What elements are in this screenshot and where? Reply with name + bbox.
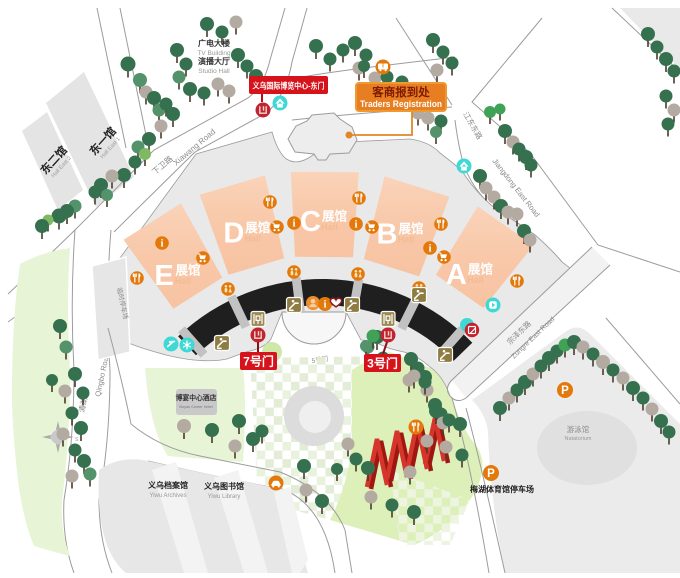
svg-text:游泳馆: 游泳馆 [567,424,590,434]
svg-text:演播大厅: 演播大厅 [198,56,230,66]
svg-text:Studio Hall: Studio Hall [198,68,230,75]
svg-text:Hall: Hall [175,276,192,286]
svg-text:Hall: Hall [245,233,262,243]
svg-text:E: E [154,260,173,292]
svg-text:Yiwu Library: Yiwu Library [208,494,241,500]
svg-text:义乌档案馆: 义乌档案馆 [147,480,188,490]
svg-text:Hall: Hall [321,222,338,232]
svg-text:义乌图书馆: 义乌图书馆 [203,481,244,491]
svg-text:7号门: 7号门 [243,354,274,369]
svg-text:Hall: Hall [467,275,484,285]
svg-text:Traders Registration: Traders Registration [360,99,442,110]
svg-text:TV Building: TV Building [197,50,231,57]
svg-text:i: i [292,218,295,230]
svg-text:i: i [428,243,431,255]
svg-text:i: i [160,238,163,250]
svg-text:广电大楼: 广电大楼 [198,38,230,48]
svg-text:3号门: 3号门 [367,356,398,371]
svg-text:C: C [300,206,321,238]
svg-text:客商报到处: 客商报到处 [371,85,430,99]
svg-text:i: i [354,219,357,231]
svg-text:Boyan Center Hotel: Boyan Center Hotel [179,405,212,409]
svg-text:梅湖体育馆停车场: 梅湖体育馆停车场 [470,484,534,494]
svg-text:i: i [323,299,326,311]
svg-text:Yiwu Archives: Yiwu Archives [149,493,186,499]
svg-text:D: D [223,217,244,249]
svg-text:义乌国际博览中心-东门: 义乌国际博览中心-东门 [252,81,325,91]
svg-text:P: P [561,385,569,397]
svg-text:Natatorium: Natatorium [565,436,592,442]
svg-text:A: A [446,259,467,291]
svg-text:博宴中心酒店: 博宴中心酒店 [176,393,217,402]
svg-text:Hall: Hall [398,235,415,245]
svg-text:P: P [487,468,495,480]
svg-text:B: B [377,219,398,251]
